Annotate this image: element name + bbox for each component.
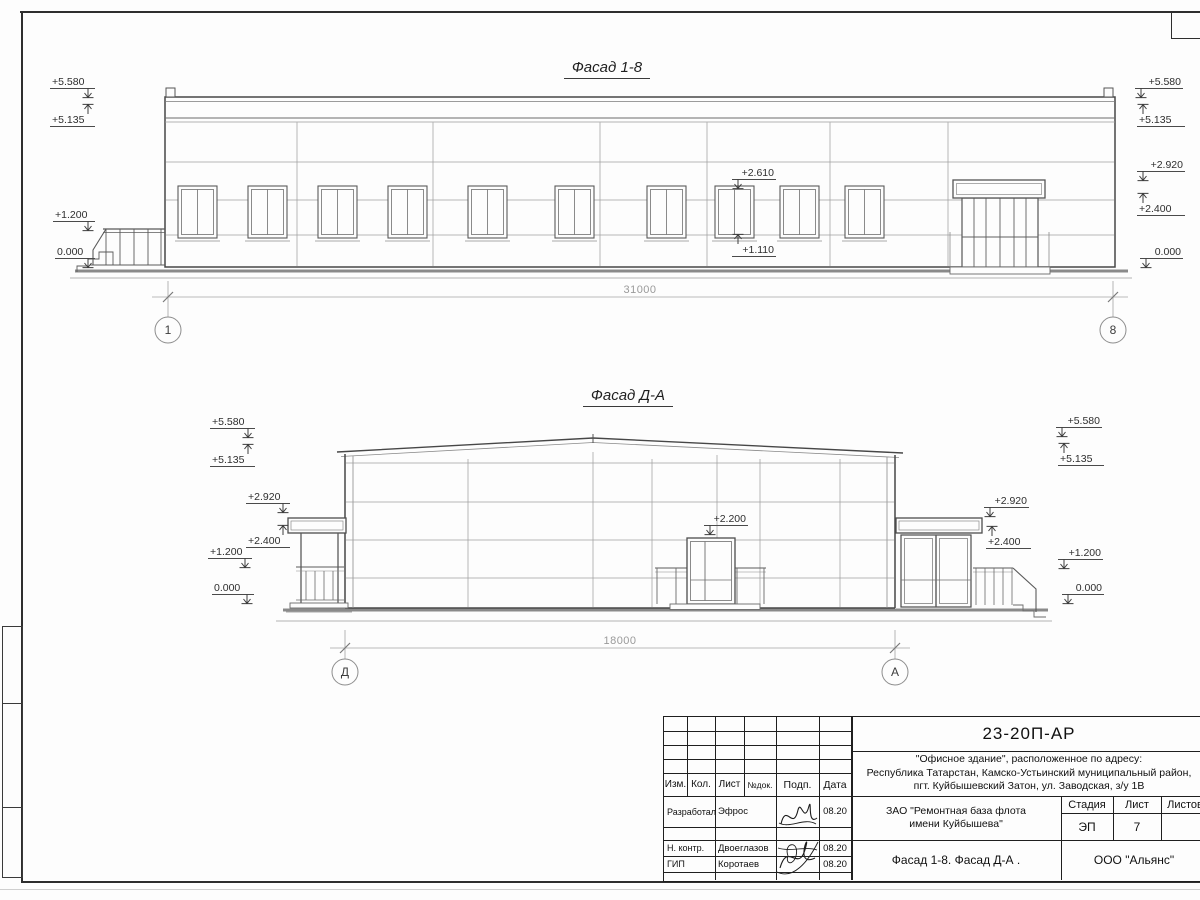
level-arrow-icon — [1136, 171, 1150, 183]
level-arrow-icon — [241, 428, 255, 440]
tb-row-name: Двоеглазов — [715, 840, 776, 856]
elevation-value: +2.920 — [248, 491, 280, 503]
elevation-mark: 0.000 — [212, 583, 254, 595]
elevation-value: +2.610 — [742, 167, 774, 179]
tb-organization: ООО "Альянс" — [1061, 840, 1200, 880]
elevation-value: +5.135 — [1139, 114, 1171, 126]
tb-project-line: пгт. Куйбышевский Затон, ул. Заводская, … — [914, 780, 1145, 794]
tb-client: ЗАО "Ремонтная база флота имени Куйбышев… — [851, 796, 1061, 840]
facade2-vestibule-right — [896, 518, 1046, 617]
level-arrow-icon — [985, 524, 999, 536]
frame-top-line — [20, 11, 1200, 13]
elevation-mark: +5.135 — [1058, 454, 1104, 466]
elevation-value: +5.580 — [52, 76, 84, 88]
tb-row-role: Разработал — [664, 796, 715, 827]
tb-row-role: Н. контр. — [664, 840, 715, 856]
axis-bubble-d: Д — [332, 665, 358, 679]
facade2-dimension-text: 18000 — [580, 635, 660, 647]
level-arrow-icon — [240, 594, 254, 606]
elevation-mark: 0.000 — [55, 247, 95, 259]
elevation-value: +5.580 — [1068, 415, 1100, 427]
facade2-building — [337, 434, 903, 608]
elevation-value: 0.000 — [1155, 246, 1181, 258]
elevation-mark: +2.400 — [1137, 204, 1185, 216]
tb-row-date: 08.20 — [819, 796, 851, 827]
level-arrow-icon — [1136, 102, 1150, 114]
elevation-mark: +5.135 — [50, 115, 95, 127]
elevation-mark: +5.135 — [210, 455, 255, 467]
frame-corner-stamp-box — [1171, 13, 1200, 39]
tb-row-date: 08.20 — [819, 856, 851, 872]
door-callout: +2.200 — [704, 514, 748, 526]
tb-sheet-title: Фасад 1-8. Фасад Д-А . — [851, 840, 1061, 880]
tb-project-line: Республика Татарстан, Камско-Устьинский … — [867, 767, 1192, 781]
elevation-mark: +2.920 — [984, 496, 1029, 508]
level-arrow-icon — [276, 503, 290, 515]
elevation-value: +2.400 — [988, 536, 1020, 548]
elevation-mark: +1.200 — [208, 547, 252, 559]
elevation-value: +2.400 — [1139, 203, 1171, 215]
elevation-mark: +2.920 — [1137, 160, 1185, 172]
level-arrow-icon — [81, 102, 95, 114]
elevation-value: +1.200 — [1069, 547, 1101, 559]
elevation-mark: +5.580 — [1056, 416, 1102, 428]
facade1-dimension-text: 31000 — [600, 284, 680, 296]
frame-side-stamp-box — [2, 807, 23, 878]
tb-project-address: "Офисное здание", расположенное по адрес… — [851, 751, 1200, 796]
level-arrow-icon — [1055, 427, 1069, 439]
tb-sheet-label: Лист — [1113, 796, 1161, 813]
level-arrow-icon — [731, 232, 745, 244]
elevation-value: +5.580 — [212, 416, 244, 428]
tb-client-line: ЗАО "Ремонтная база флота — [886, 805, 1026, 818]
frame-side-stamp-box — [2, 626, 23, 704]
tb-col-izm: Изм. — [664, 773, 687, 796]
elevation-value: 0.000 — [1076, 582, 1102, 594]
level-arrow-icon — [81, 221, 95, 233]
tb-document-code: 23-20П-АР — [851, 717, 1200, 751]
tb-col-data: Дата — [819, 773, 851, 796]
elevation-value: +2.920 — [1151, 159, 1183, 171]
level-arrow-icon — [241, 442, 255, 454]
elevation-value: +5.135 — [1060, 453, 1092, 465]
level-arrow-icon — [81, 258, 95, 270]
elevation-value: +5.135 — [52, 114, 84, 126]
tb-col-kol: Кол. — [687, 773, 715, 796]
window-callout-bottom: +1.110 — [732, 245, 776, 257]
elevation-value: +5.580 — [1149, 76, 1181, 88]
axis-bubble-a: А — [882, 665, 908, 679]
level-arrow-icon — [703, 525, 717, 537]
level-arrow-icon — [238, 558, 252, 570]
tb-row-name: Коротаев — [715, 856, 776, 872]
level-arrow-icon — [1061, 594, 1075, 606]
facade2-ground — [276, 610, 1052, 621]
level-arrow-icon — [276, 523, 290, 535]
tb-row-name: Эфрос — [715, 796, 776, 827]
level-arrow-icon — [1057, 559, 1071, 571]
window-callout-top: +2.610 — [732, 168, 776, 180]
tb-col-ndoc: №док. — [744, 773, 776, 796]
tb-client-line: имени Куйбышева" — [909, 818, 1003, 831]
title-block: Изм. Кол. Лист №док. Подп. Дата Разработ… — [663, 716, 1200, 882]
elevation-mark: +5.580 — [50, 77, 95, 89]
tb-col-podp: Подп. — [776, 773, 819, 796]
sheet-bottom-edge — [0, 889, 1200, 890]
tb-stage-label: Стадия — [1061, 796, 1113, 813]
axis-bubble-8: 8 — [1100, 323, 1126, 337]
tb-stage-value: ЭП — [1061, 813, 1113, 840]
elevation-mark: +5.135 — [1137, 115, 1185, 127]
level-arrow-icon — [1139, 258, 1153, 270]
tb-row-role: ГИП — [664, 856, 715, 872]
elevation-value: +2.920 — [995, 495, 1027, 507]
elevation-value: +1.200 — [55, 209, 87, 221]
frame-side-stamp-box — [2, 703, 23, 808]
drawing-sheet: Фасад 1-8 Фасад Д-А 31000 18000 1 8 Д А … — [0, 0, 1200, 900]
elevation-value: +2.200 — [714, 513, 746, 525]
level-arrow-icon — [1134, 88, 1148, 100]
elevation-mark: +2.920 — [246, 492, 290, 504]
facade1-entrance — [950, 180, 1050, 274]
elevation-value: 0.000 — [57, 246, 83, 258]
level-arrow-icon — [81, 88, 95, 100]
elevation-value: 0.000 — [214, 582, 240, 594]
tb-col-list: Лист — [715, 773, 744, 796]
elevation-mark: 0.000 — [1140, 247, 1183, 259]
elevation-mark: +2.400 — [246, 536, 290, 548]
tb-project-line: "Офисное здание", расположенное по адрес… — [916, 753, 1142, 767]
elevation-mark: +2.400 — [986, 537, 1031, 549]
facade1-title: Фасад 1-8 — [532, 59, 682, 76]
elevation-mark: 0.000 — [1062, 583, 1104, 595]
elevation-value: +2.400 — [248, 535, 280, 547]
facade2-title: Фасад Д-А — [553, 387, 703, 404]
elevation-mark: +5.580 — [1135, 77, 1183, 89]
tb-sheets-label: Листов — [1161, 796, 1200, 813]
level-arrow-icon — [731, 179, 745, 191]
axis-bubble-1: 1 — [155, 323, 181, 337]
level-arrow-icon — [1136, 191, 1150, 203]
elevation-value: +1.110 — [742, 244, 774, 256]
elevation-value: +5.135 — [212, 454, 244, 466]
level-arrow-icon — [983, 507, 997, 519]
tb-row-date: 08.20 — [819, 840, 851, 856]
elevation-mark: +1.200 — [1058, 548, 1103, 560]
facade2-porch-left — [286, 518, 352, 612]
tb-sheet-value: 7 — [1113, 813, 1161, 840]
elevation-mark: +5.580 — [210, 417, 255, 429]
level-arrow-icon — [1057, 441, 1071, 453]
elevation-value: +1.200 — [210, 546, 242, 558]
elevation-mark: +1.200 — [53, 210, 95, 222]
